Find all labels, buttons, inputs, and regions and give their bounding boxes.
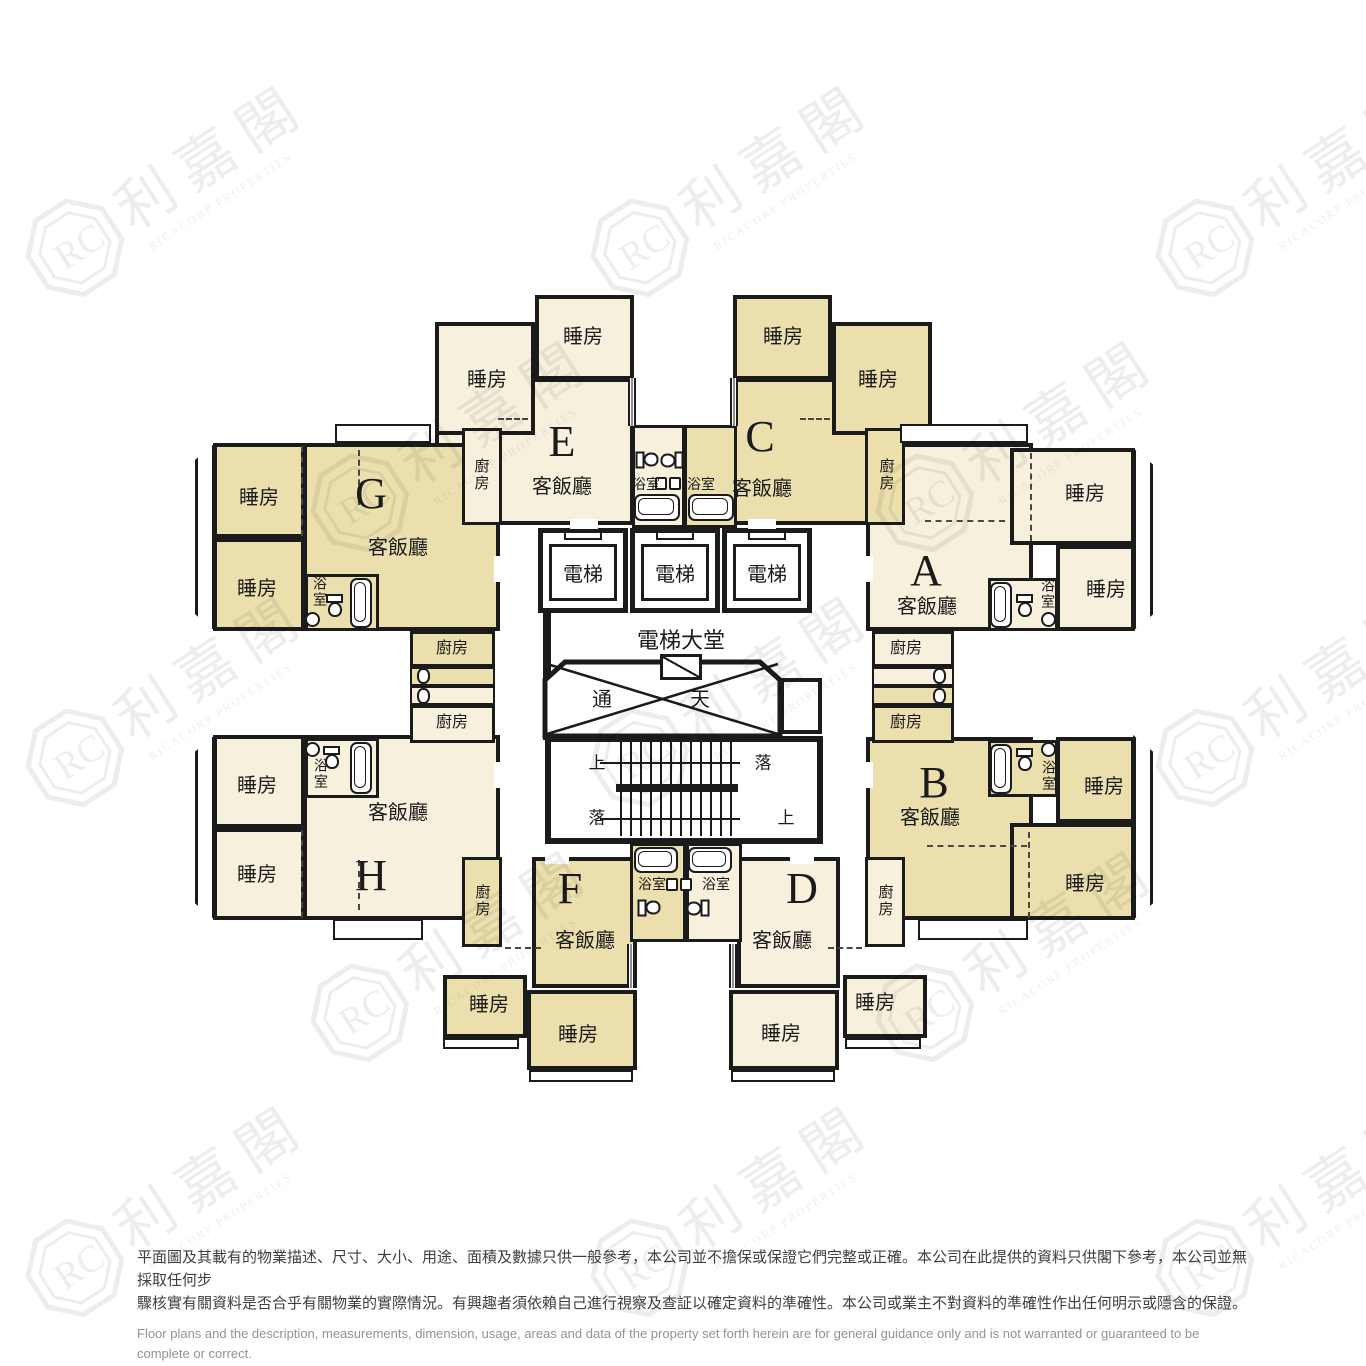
dash-f-living: [505, 947, 541, 949]
lightwell-vent: [660, 654, 702, 680]
label-stair-up-1: 上: [589, 755, 606, 772]
toilet-g-bowl: [328, 602, 342, 617]
unit-d-letter: D: [786, 867, 818, 911]
window-bottom-right: [729, 944, 737, 988]
window-top-right: [730, 378, 738, 426]
label-living-g: 客飯廳: [368, 538, 428, 558]
label-bedroom-f1: 睡房: [469, 995, 509, 1015]
label-lightwell-2: 天: [690, 690, 710, 710]
tub-b-inner: [994, 748, 1006, 788]
disclaimer-zh-line-2: 驟核實有關資料是否合乎有關物業的實際情況。有興趣者須依賴自己進行視察及查証以確定…: [137, 1292, 1247, 1315]
floor-plan-page: 電梯電梯電梯GHECABFD睡房睡房睡房睡房睡房睡房睡房睡房睡房睡房睡房睡房睡房…: [0, 0, 1366, 1366]
svg-text:利嘉閣: 利嘉閣: [1234, 1091, 1366, 1263]
door-unit-f: [545, 855, 569, 864]
svg-text:RC: RC: [47, 726, 112, 789]
label-stair-up-2: 上: [778, 810, 795, 827]
lightwell-annex: [780, 678, 822, 734]
lift-label-2: 電梯: [655, 565, 695, 585]
tub-c: [688, 494, 734, 521]
lift-label-1: 電梯: [563, 565, 603, 585]
label-bath-d: 浴室: [702, 879, 730, 893]
watermark-logo: RC利嘉閣RICACORP PROPERTIES: [1075, 30, 1366, 290]
label-bedroom-g1: 睡房: [239, 488, 279, 508]
svg-text:RC: RC: [1177, 726, 1242, 789]
sink-a: [1041, 612, 1056, 627]
label-bedroom-a1: 睡房: [1065, 484, 1105, 504]
label-bath-h: 浴室: [312, 758, 326, 790]
toilet-c-bowl: [661, 453, 676, 467]
unit-g-letter: G: [355, 472, 387, 516]
sink-h: [305, 742, 320, 757]
lift-door-1: [564, 531, 602, 540]
svg-text:RC: RC: [47, 1236, 112, 1299]
bay-window-g: [195, 443, 215, 631]
label-bedroom-h2: 睡房: [237, 865, 277, 885]
toilet-a-bowl: [1018, 602, 1032, 617]
label-bedroom-g2: 睡房: [237, 579, 277, 599]
door-unit-d: [790, 855, 814, 864]
tub-f: [634, 847, 678, 873]
label-bath-b: 浴室: [1040, 760, 1054, 792]
svg-text:利嘉閣: 利嘉閣: [104, 71, 321, 243]
balcony-a: [900, 424, 1028, 443]
basin-fd-1: [666, 878, 678, 891]
label-stair-down-2: 落: [589, 810, 606, 827]
bay-window-h: [195, 735, 215, 920]
balcony-f: [529, 1070, 633, 1082]
tub-e: [634, 494, 680, 521]
tub-e-inner: [638, 498, 674, 515]
toilet-c: [660, 452, 684, 469]
dash-g-bed1: [301, 446, 303, 536]
svg-text:利嘉閣: 利嘉閣: [669, 1091, 886, 1263]
toilet-c-tank: [675, 452, 684, 469]
wc-left-2: [417, 688, 430, 704]
label-lift-lobby: 電梯大堂: [637, 630, 725, 652]
tub-h: [350, 742, 372, 794]
basin-ec-2: [669, 477, 681, 490]
svg-text:利嘉閣: 利嘉閣: [669, 71, 886, 243]
label-kitchen-d: 廚房: [877, 884, 892, 918]
label-living-e: 客飯廳: [532, 477, 592, 497]
label-kitchen-c: 廚房: [878, 458, 893, 492]
balcony-g: [335, 424, 431, 443]
label-bedroom-d1: 睡房: [855, 993, 895, 1013]
toilet-e: [636, 452, 660, 469]
label-living-b: 客飯廳: [900, 808, 960, 828]
tub-d: [688, 847, 732, 873]
tub-f-inner: [638, 851, 672, 867]
door-unit-e: [570, 519, 598, 529]
label-bath-c: 浴室: [687, 479, 715, 493]
stair-flight-2: [620, 792, 734, 836]
label-bedroom-b1: 睡房: [1084, 777, 1124, 797]
door-unit-b: [864, 762, 873, 788]
label-bath-f: 浴室: [638, 879, 666, 893]
toilet-b-bowl: [1018, 756, 1032, 771]
svg-text:RC: RC: [612, 216, 677, 279]
lift-door-2: [656, 531, 694, 540]
window-bottom-left: [627, 944, 635, 988]
bay-window-b: [1133, 735, 1153, 920]
label-bedroom-b2: 睡房: [1065, 874, 1105, 894]
wc-right-2: [933, 688, 946, 704]
svg-text:RC: RC: [1177, 216, 1242, 279]
tub-g-inner: [354, 582, 366, 622]
svg-text:利嘉閣: 利嘉閣: [1234, 71, 1366, 243]
label-bedroom-e1: 睡房: [563, 327, 603, 347]
svg-text:RICACORP PROPERTIES: RICACORP PROPERTIES: [1277, 1171, 1366, 1273]
label-living-f: 客飯廳: [555, 931, 615, 951]
bay-window-a: [1133, 448, 1153, 631]
unit-b-letter: B: [919, 761, 948, 805]
svg-text:RICACORP PROPERTIES: RICACORP PROPERTIES: [1277, 151, 1366, 253]
tub-d-inner: [692, 851, 726, 867]
lift-label-3: 電梯: [747, 565, 787, 585]
toilet-e-bowl: [644, 453, 659, 467]
label-living-c: 客飯廳: [732, 479, 792, 499]
svg-text:RICACORP PROPERTIES: RICACORP PROPERTIES: [147, 151, 295, 253]
label-stair-down-1: 落: [755, 755, 772, 772]
lift-door-3: [748, 531, 786, 540]
label-bedroom-c2: 睡房: [858, 370, 898, 390]
label-kitchen-h: 廚房: [436, 715, 468, 731]
svg-text:RC: RC: [47, 216, 112, 279]
label-kitchen-g: 廚房: [436, 641, 468, 657]
label-bath-e: 浴室: [632, 479, 660, 493]
toilet-b: [1016, 748, 1033, 772]
watermark-logo: RC利嘉閣RICACORP PROPERTIES: [0, 30, 365, 290]
svg-text:利嘉閣: 利嘉閣: [104, 1091, 321, 1263]
watermark-logo: RC利嘉閣RICACORP PROPERTIES: [510, 30, 930, 290]
unit-h-letter: H: [355, 854, 387, 898]
label-living-h: 客飯廳: [368, 803, 428, 823]
label-bedroom-a2: 睡房: [1086, 580, 1126, 600]
stair-landing: [616, 784, 738, 792]
tub-g: [350, 578, 372, 628]
wc-right-1: [933, 668, 946, 684]
toilet-f-bowl: [646, 901, 661, 915]
toilet-d-bowl: [687, 901, 702, 915]
dash-b-living: [927, 845, 1027, 847]
unit-e-letter: E: [549, 420, 576, 464]
unit-f-living: [532, 857, 637, 988]
label-bedroom-d2: 睡房: [761, 1024, 801, 1044]
label-bedroom-f2: 睡房: [558, 1025, 598, 1045]
label-bedroom-c1: 睡房: [763, 327, 803, 347]
toilet-f: [638, 900, 662, 917]
label-kitchen-e: 廚房: [473, 458, 488, 492]
label-living-d: 客飯廳: [752, 931, 812, 951]
disclaimer-zh-line-1: 平面圖及其載有的物業描述、尺寸、大小、用途、面積及數據只供一般參考，本公司並不擔…: [137, 1246, 1247, 1292]
disclaimer-en-line-1: Floor plans and the description, measure…: [137, 1324, 1247, 1364]
balcony-d2: [845, 1038, 921, 1049]
sink-g: [305, 612, 320, 627]
stair-arrow-2: [600, 818, 740, 820]
svg-text:RC: RC: [332, 981, 397, 1044]
svg-text:RICACORP PROPERTIES: RICACORP PROPERTIES: [712, 151, 860, 253]
toilet-d: [686, 900, 710, 917]
dash-a-living: [925, 520, 1005, 522]
svg-text:利嘉閣: 利嘉閣: [1234, 581, 1366, 753]
balcony-f2: [443, 1038, 519, 1049]
tub-c-inner: [692, 498, 728, 515]
dash-a-bed1: [1030, 453, 1032, 541]
unit-f-letter: F: [558, 867, 582, 911]
dash-c-living: [800, 418, 830, 420]
label-bath-g: 浴室: [311, 576, 325, 608]
toilet-d-tank: [701, 900, 710, 917]
disclaimer: 平面圖及其載有的物業描述、尺寸、大小、用途、面積及數據只供一般參考，本公司並不擔…: [137, 1246, 1247, 1366]
label-kitchen-b: 廚房: [890, 715, 922, 731]
label-bath-a: 浴室: [1039, 578, 1053, 610]
label-bedroom-h1: 睡房: [237, 776, 277, 796]
balcony-d: [731, 1070, 835, 1082]
balcony-b: [918, 919, 1028, 940]
label-lightwell-1: 通: [592, 690, 612, 710]
tub-a: [990, 582, 1012, 628]
door-unit-c: [748, 519, 776, 529]
dash-b-bed2: [1028, 832, 1030, 918]
dash-e-living: [498, 418, 528, 420]
floor-plan: 電梯電梯電梯GHECABFD睡房睡房睡房睡房睡房睡房睡房睡房睡房睡房睡房睡房睡房…: [0, 0, 1366, 1366]
toilet-g: [326, 594, 343, 618]
unit-a-letter: A: [910, 549, 942, 593]
stair-arrow-1: [600, 762, 740, 764]
basin-fd-2: [680, 878, 692, 891]
label-bedroom-e2: 睡房: [467, 370, 507, 390]
unit-c-letter: C: [745, 415, 774, 459]
sink-b: [1041, 742, 1056, 757]
toilet-a: [1016, 594, 1033, 618]
door-unit-a: [864, 556, 873, 582]
balcony-h: [333, 919, 423, 940]
door-unit-h: [494, 762, 503, 788]
svg-text:RICACORP PROPERTIES: RICACORP PROPERTIES: [1277, 661, 1366, 763]
door-unit-g: [494, 556, 503, 582]
label-kitchen-a: 廚房: [890, 641, 922, 657]
disclaimer-en: Floor plans and the description, measure…: [137, 1324, 1247, 1366]
tub-b: [990, 744, 1012, 794]
window-top-left: [628, 378, 636, 426]
dash-d-living: [828, 947, 862, 949]
dash-h-bed2: [301, 830, 303, 918]
tub-h-inner: [354, 746, 366, 788]
label-living-a: 客飯廳: [897, 597, 957, 617]
wc-left-1: [417, 668, 430, 684]
tub-a-inner: [994, 586, 1006, 622]
label-kitchen-f: 廚房: [474, 884, 489, 918]
